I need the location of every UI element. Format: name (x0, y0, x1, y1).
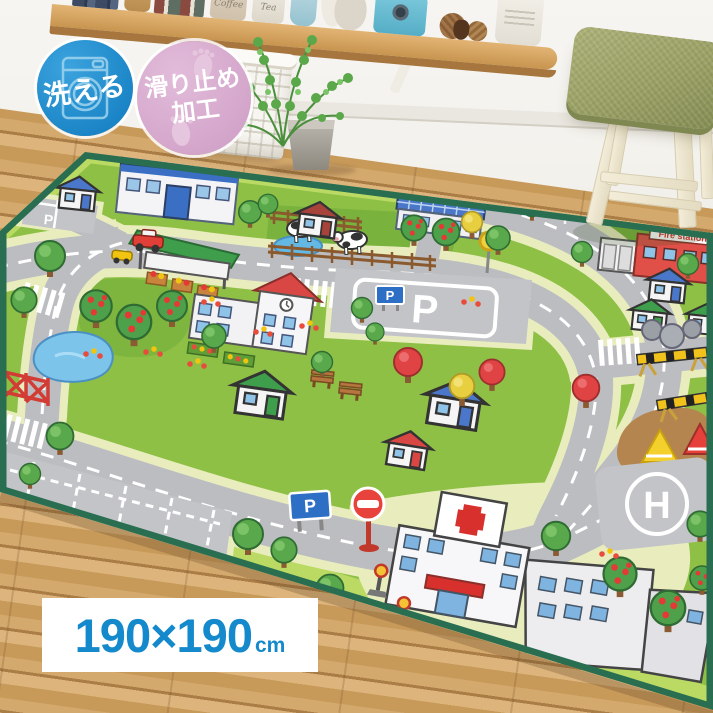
size-value: 190×190 (75, 608, 252, 663)
product-photo: Coffee Tea (0, 0, 713, 713)
helipad-letter: H (643, 485, 670, 527)
nonslip-badge: 滑り止め 加工 (137, 41, 251, 155)
washable-badge: 洗える (37, 40, 133, 136)
stool-cushion (565, 25, 713, 131)
parking-letter: P (410, 287, 440, 333)
police-station: POLICE (116, 146, 240, 224)
parking-letter: P (43, 211, 54, 228)
parking-letter: P (303, 496, 316, 517)
helipad: H (594, 456, 713, 552)
size-unit: cm (255, 634, 285, 658)
size-label: 190×190 cm (42, 598, 318, 672)
parking-letter: P (386, 288, 395, 303)
